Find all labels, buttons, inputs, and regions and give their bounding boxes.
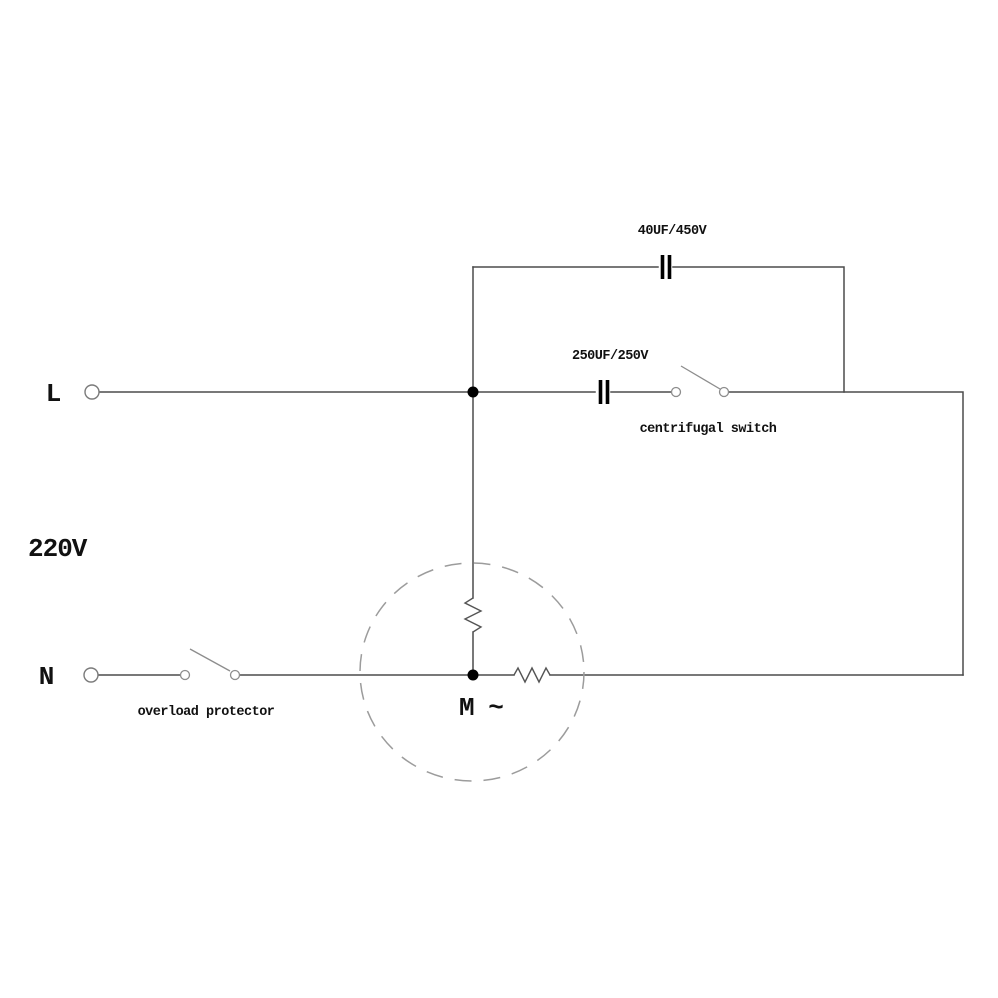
vertical-winding-resistor [465, 598, 481, 632]
centrifugal-switch-blade [681, 366, 720, 389]
overload-protector-symbol [181, 649, 240, 680]
centrifugal-switch-contact-right [720, 388, 729, 397]
supply-voltage-label: 220V [28, 534, 88, 564]
overload-protector-blade [190, 649, 230, 671]
overload-protector-contact-left [181, 671, 190, 680]
capacitors [601, 255, 670, 404]
horizontal-winding-resistor [514, 668, 550, 682]
overload-protector-contact-right [231, 671, 240, 680]
neutral-terminal-circle [84, 668, 98, 682]
text-labels: L N 220V M ~ 40UF/450V 250UF/250V centri… [28, 224, 777, 723]
line-terminal-label: L [46, 379, 61, 409]
overload-protector-label: overload protector [138, 705, 275, 720]
l-junction-dot [468, 387, 479, 398]
centrifugal-switch-label: centrifugal switch [640, 422, 777, 437]
motor-junction-dot [468, 670, 479, 681]
wiring-diagram-page: L N 220V M ~ 40UF/450V 250UF/250V centri… [0, 0, 998, 998]
centrifugal-switch-symbol [672, 366, 729, 397]
centrifugal-switch-contact-left [672, 388, 681, 397]
line-terminal-circle [85, 385, 99, 399]
motor-wiring-diagram: L N 220V M ~ 40UF/450V 250UF/250V centri… [0, 0, 998, 998]
motor-label: M ~ [459, 693, 503, 723]
top-branch-wire-right [673, 267, 844, 392]
run-capacitor-label: 40UF/450V [638, 224, 708, 239]
winding-resistors [465, 598, 550, 682]
start-capacitor-label: 250UF/250V [572, 349, 649, 364]
wires [98, 267, 963, 675]
neutral-terminal-label: N [39, 662, 54, 692]
